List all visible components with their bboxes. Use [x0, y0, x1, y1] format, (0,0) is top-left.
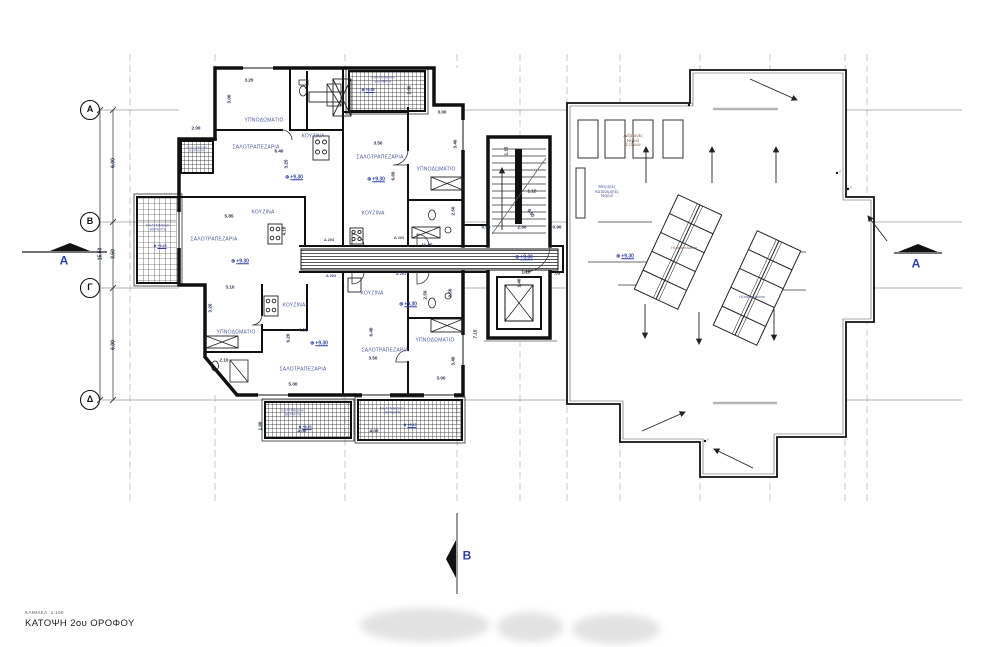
section-a-left-symbol	[22, 243, 107, 252]
scan-smudge	[360, 608, 490, 642]
corridor-hatch	[301, 249, 558, 270]
roof-outline	[567, 70, 874, 477]
title-block: ΚΛΙΜΑΚΑ 1:100 ΚΑΤΟΨΗ 2ου ΟΡΟΦΟΥ	[25, 610, 135, 629]
drawing-sheet: ΑΒΓΔAAB6.003.506.0015.50ΥΠΝΟΔΩΜΑΤΙΟΚΟΥΖΙ…	[0, 0, 989, 647]
scan-smudge	[497, 612, 563, 642]
roof-terrace	[567, 70, 887, 477]
floor-plan-graphics	[0, 0, 989, 647]
section-a-right-symbol	[894, 244, 942, 253]
scale-note: ΚΛΙΜΑΚΑ 1:100	[25, 610, 135, 615]
building-footprint	[179, 68, 550, 395]
dimension-chain	[97, 107, 116, 403]
grid-row-markers	[81, 101, 100, 410]
section-b-symbol	[446, 513, 457, 594]
scan-smudge	[572, 614, 660, 644]
drawing-title: ΚΑΤΟΨΗ 2ου ΟΡΟΦΟΥ	[25, 618, 135, 629]
